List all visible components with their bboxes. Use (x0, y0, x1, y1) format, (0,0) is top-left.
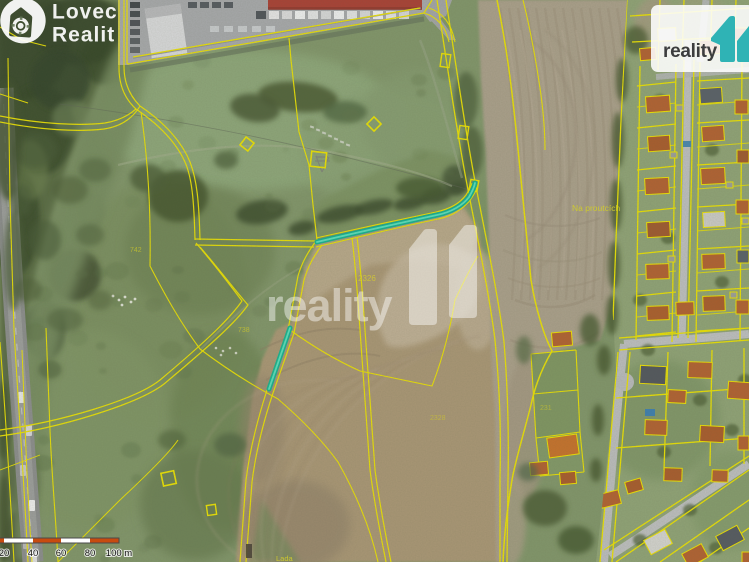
svg-text:80: 80 (85, 548, 96, 559)
svg-text:60: 60 (56, 548, 67, 559)
svg-text:reality: reality (266, 280, 393, 331)
svg-text:20: 20 (0, 548, 9, 559)
svg-text:100 m: 100 m (106, 548, 132, 559)
svg-text:Lovec: Lovec (52, 1, 118, 24)
svg-text:reality: reality (663, 41, 718, 62)
svg-text:Realit: Realit (52, 24, 115, 47)
svg-text:40: 40 (28, 548, 39, 559)
